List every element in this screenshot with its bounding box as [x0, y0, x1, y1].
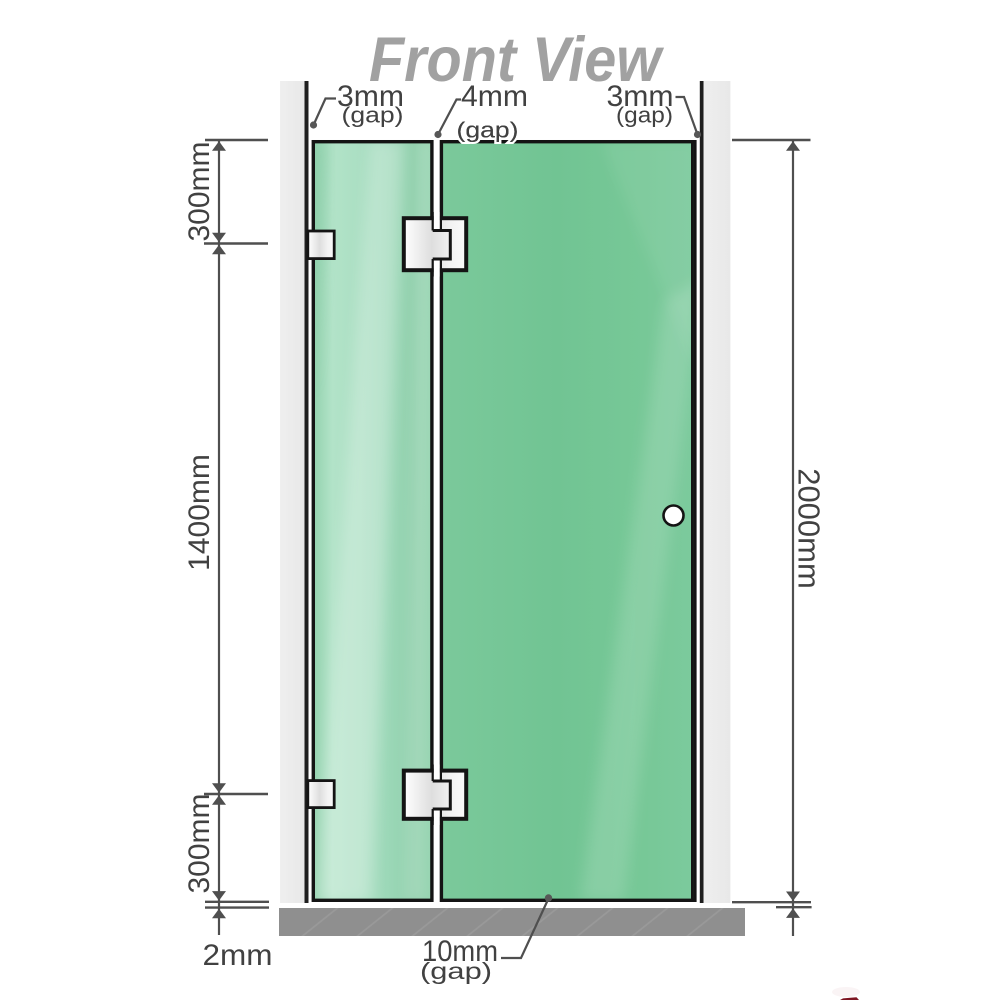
svg-text:(gap): (gap) — [342, 103, 404, 128]
svg-text:(gap): (gap) — [420, 958, 492, 984]
svg-text:300mm: 300mm — [183, 793, 216, 893]
svg-text:2mm: 2mm — [203, 939, 273, 972]
svg-text:300mm: 300mm — [183, 141, 216, 241]
svg-text:1400mm: 1400mm — [183, 454, 216, 571]
svg-text:(gap): (gap) — [457, 118, 519, 143]
svg-text:2000mm: 2000mm — [792, 468, 827, 589]
svg-text:4mm: 4mm — [461, 80, 528, 113]
svg-text:(gap): (gap) — [616, 103, 673, 128]
